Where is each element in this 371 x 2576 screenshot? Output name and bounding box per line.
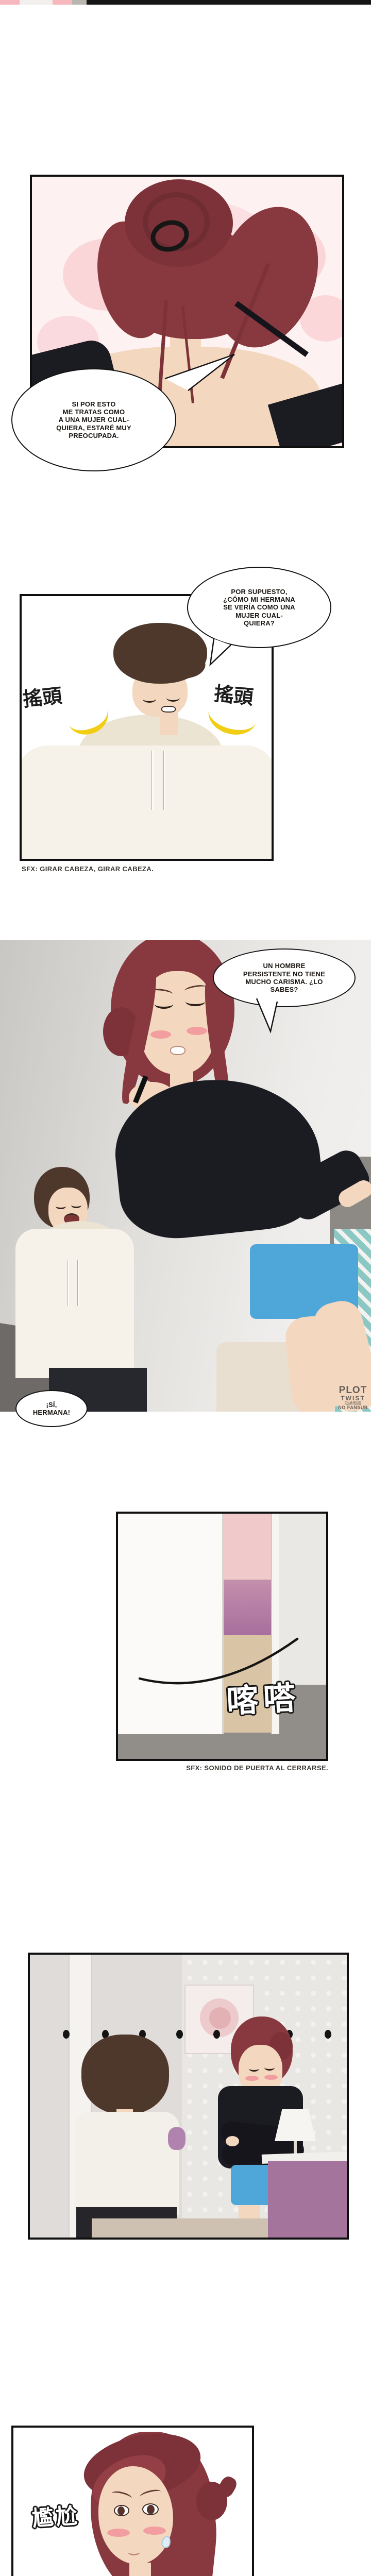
bubble-line: QUIERA, ESTARÉ MUY xyxy=(56,424,131,432)
rose-center xyxy=(209,2007,231,2029)
bubble-line: SI POR ESTO xyxy=(72,400,115,408)
brother-closed-eye xyxy=(71,1202,81,1208)
bubble-line: ¿CÓMO MI HERMANA xyxy=(223,596,295,603)
mouth xyxy=(128,2549,140,2555)
brother-closed-eye xyxy=(56,1203,66,1209)
sister-closed-eye xyxy=(155,999,173,1009)
watermark-line: PLOT xyxy=(336,1385,370,1395)
hoodie-drawstring xyxy=(67,1260,69,1306)
bubble-line: SE VERÍA COMO UNA xyxy=(223,603,295,611)
sister-blush xyxy=(150,1030,171,1039)
blush xyxy=(143,2527,166,2535)
bubble-line: POR SUPUESTO, xyxy=(231,588,287,596)
brother-hoodie xyxy=(15,1229,134,1378)
translator-watermark: PLOT TWIST 起承転結 NO FANSUB xyxy=(336,1385,370,1410)
hoodie-drawstring xyxy=(163,751,165,810)
hoodie-drawstring xyxy=(77,1260,79,1306)
purple-candle xyxy=(168,2127,185,2150)
bubble-line: ME TRATAS COMO xyxy=(63,408,125,416)
watermark-line: NO FANSUB xyxy=(336,1405,370,1410)
panel-5-awkward-room xyxy=(28,1953,349,2240)
doorway-band-mauve xyxy=(224,1580,271,1635)
table-front-purple xyxy=(268,2161,347,2238)
bubble-line: QUIERA? xyxy=(244,619,275,627)
sister-parted-lips xyxy=(170,1046,185,1055)
blush xyxy=(107,2529,130,2537)
smile-mouth xyxy=(161,706,176,713)
iris xyxy=(117,2506,125,2515)
hoodie-drawstring xyxy=(151,751,154,810)
bubble-line: ¡SÍ, xyxy=(46,1401,57,1409)
bubble-line: MUJER CUAL- xyxy=(235,612,283,619)
sliver-gray xyxy=(72,0,87,5)
beat-dot xyxy=(63,2030,70,2039)
closed-eye-left xyxy=(143,695,156,703)
sfx-caption-headshake: SFX: GIRAR CABEZA, GIRAR CABEZA. xyxy=(22,865,154,873)
bubble-3-tail xyxy=(247,994,294,1038)
top-sliver xyxy=(0,0,371,5)
panel-3-hallway-scene: PLOT TWIST 起承転結 NO FANSUB xyxy=(0,940,371,1412)
doorway-wall-pink xyxy=(224,1514,271,1580)
bubble-line: A UNA MUJER CUAL- xyxy=(59,416,129,423)
hand xyxy=(226,2136,239,2146)
closed-eye-right xyxy=(166,694,180,702)
bubble-line: MUCHO CARISMA. ¿LO xyxy=(245,978,323,986)
neck xyxy=(129,2563,151,2576)
sfx-headshake-right: 搖頭 xyxy=(213,677,255,710)
hoodie-body xyxy=(20,745,274,859)
sister-blush xyxy=(187,1027,207,1035)
bubble-line: SABES? xyxy=(271,986,298,993)
sliver-white xyxy=(20,0,53,5)
iris xyxy=(147,2505,155,2514)
bubble-line: PERSISTENTE NO TIENE xyxy=(243,970,325,978)
panel-6-sister-awkward: 尷尬 xyxy=(11,2426,254,2576)
bubble-line: PREOCUPADA. xyxy=(69,432,119,439)
brother-white-shirt xyxy=(74,2112,179,2215)
panel-4-door-closing: 喀嗒 xyxy=(116,1512,328,1761)
sfx-awkward: 尷尬 xyxy=(31,2498,80,2533)
bubble-2-tail xyxy=(196,634,242,670)
sister-eye xyxy=(264,2064,275,2071)
speech-bubble-4: ¡SÍ, HERMANA! xyxy=(15,1390,88,1427)
sister-eye xyxy=(249,2065,259,2072)
bubble-line: UN HOMBRE xyxy=(263,962,306,970)
sister-blush xyxy=(264,2075,278,2080)
beat-dot xyxy=(325,2030,331,2039)
beat-dot xyxy=(213,2030,220,2039)
sfx-door-click: 喀嗒 xyxy=(225,1671,302,1721)
sliver-black xyxy=(87,0,371,5)
brother-hair-back xyxy=(81,2035,169,2114)
sfx-caption-door: SFX: SONIDO DE PUERTA AL CERRARSE. xyxy=(186,1764,328,1772)
bubble-line: HERMANA! xyxy=(33,1409,70,1416)
bubble-1-tail xyxy=(149,340,242,392)
sister-closed-eye xyxy=(185,997,205,1006)
webtoon-page: SI POR ESTO ME TRATAS COMO A UNA MUJER C… xyxy=(0,0,371,2576)
sister-blush xyxy=(245,2076,259,2081)
sfx-headshake-left: 搖頭 xyxy=(21,680,63,712)
beat-dot xyxy=(176,2030,183,2039)
